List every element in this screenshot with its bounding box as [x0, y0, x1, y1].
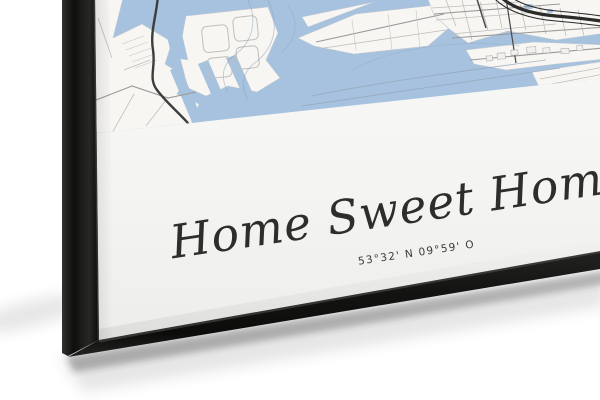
- framed-map-poster-photo: Home Sweet Home 53°32' N 09°59' O: [0, 0, 600, 400]
- land-pier-island: [179, 7, 280, 96]
- scene-canvas: Home Sweet Home 53°32' N 09°59' O: [0, 0, 600, 400]
- frame-left-edge: [62, 0, 99, 356]
